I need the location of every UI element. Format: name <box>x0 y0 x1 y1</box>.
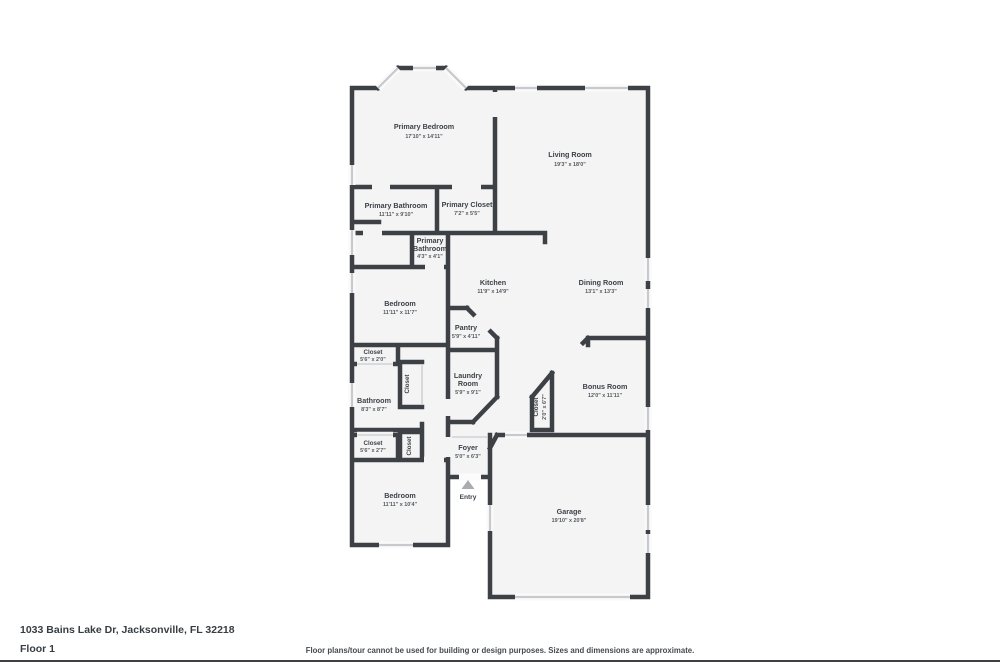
svg-text:4'3" x 4'1": 4'3" x 4'1" <box>417 254 443 260</box>
room-label-pantry: Pantry 5'9" x 4'11" <box>452 323 481 340</box>
svg-text:Entry: Entry <box>460 494 477 501</box>
svg-text:19'10" x 20'8": 19'10" x 20'8" <box>552 518 587 524</box>
svg-text:11'11" x 9'10": 11'11" x 9'10" <box>379 212 414 218</box>
room-label-bathroom-2: Bathroom 8'3" x 8'7" <box>357 396 391 413</box>
svg-text:Kitchen: Kitchen <box>480 278 506 287</box>
svg-text:Primary Bathroom: Primary Bathroom <box>365 201 428 210</box>
svg-text:Bonus Room: Bonus Room <box>583 382 628 391</box>
floorplan-page: Primary Bedroom 17'10" x 14'11" Living R… <box>0 0 1000 667</box>
svg-text:7'2" x 5'5": 7'2" x 5'5" <box>454 211 480 217</box>
svg-text:12'0" x 11'11": 12'0" x 11'11" <box>588 393 623 399</box>
svg-text:Closet: Closet <box>533 398 540 417</box>
svg-text:Garage: Garage <box>557 507 582 516</box>
svg-text:Bedroom: Bedroom <box>384 299 416 308</box>
svg-text:13'1" x 13'3": 13'1" x 13'3" <box>585 289 617 295</box>
svg-text:Closet: Closet <box>406 437 413 456</box>
svg-text:2'0" x 6'7": 2'0" x 6'7" <box>542 394 548 420</box>
bottom-border <box>0 660 1000 662</box>
room-label-primary-bathroom-2: Primary Bathroom 4'3" x 4'1" <box>413 236 447 260</box>
svg-text:11'11" x 11'7": 11'11" x 11'7" <box>383 310 417 316</box>
svg-text:5'6" x 2'0": 5'6" x 2'0" <box>360 357 386 363</box>
disclaimer-text: Floor plans/tour cannot be used for buil… <box>0 646 1000 655</box>
room-label-laundry-room: Laundry Room 5'9" x 9'1" <box>454 371 482 396</box>
svg-text:11'11" x 10'4": 11'11" x 10'4" <box>383 502 418 508</box>
svg-text:Bedroom: Bedroom <box>384 491 416 500</box>
svg-text:19'3" x 18'0": 19'3" x 18'0" <box>554 162 586 168</box>
svg-text:8'3" x 8'7": 8'3" x 8'7" <box>361 407 387 413</box>
room-label-hall-closet-1: Closet <box>404 375 411 394</box>
svg-text:Primary Closet: Primary Closet <box>442 200 493 209</box>
address-text: 1033 Bains Lake Dr, Jacksonville, FL 322… <box>20 624 235 636</box>
svg-text:5'9" x 4'11": 5'9" x 4'11" <box>452 334 481 340</box>
svg-text:5'6" x 2'7": 5'6" x 2'7" <box>360 448 386 454</box>
floor-plan: Primary Bedroom 17'10" x 14'11" Living R… <box>0 0 1000 667</box>
svg-text:Living Room: Living Room <box>548 150 592 159</box>
svg-text:5'0" x 6'3": 5'0" x 6'3" <box>455 454 481 460</box>
svg-text:Bathroom: Bathroom <box>357 396 391 405</box>
svg-text:Foyer: Foyer <box>458 443 478 452</box>
room-label-bonus-room: Bonus Room 12'0" x 11'11" <box>583 382 628 399</box>
svg-text:Room: Room <box>458 379 478 388</box>
svg-text:Closet: Closet <box>364 349 383 356</box>
svg-text:11'9" x 14'9": 11'9" x 14'9" <box>477 289 509 295</box>
svg-text:17'10" x 14'11": 17'10" x 14'11" <box>405 134 443 140</box>
svg-text:Dining Room: Dining Room <box>579 278 624 287</box>
room-label-entry: Entry <box>460 494 477 501</box>
svg-text:Pantry: Pantry <box>455 323 477 332</box>
svg-text:5'9" x 9'1": 5'9" x 9'1" <box>455 390 481 396</box>
floor-footprint <box>352 68 648 597</box>
svg-text:Bathroom: Bathroom <box>413 244 447 253</box>
room-label-dining-room: Dining Room 13'1" x 13'3" <box>579 278 624 295</box>
svg-text:Closet: Closet <box>364 440 383 447</box>
room-label-bedroom-2: Bedroom 11'11" x 11'7" <box>383 299 417 316</box>
svg-text:Closet: Closet <box>404 375 411 394</box>
room-label-hall-closet-2: Closet <box>406 437 413 456</box>
room-label-foyer: Foyer 5'0" x 6'3" <box>455 443 481 460</box>
entry-arrow-icon <box>462 480 475 489</box>
room-label-kitchen: Kitchen 11'9" x 14'9" <box>477 278 509 295</box>
room-label-bedroom-3: Bedroom 11'11" x 10'4" <box>383 491 418 508</box>
svg-text:Primary Bedroom: Primary Bedroom <box>394 122 454 131</box>
